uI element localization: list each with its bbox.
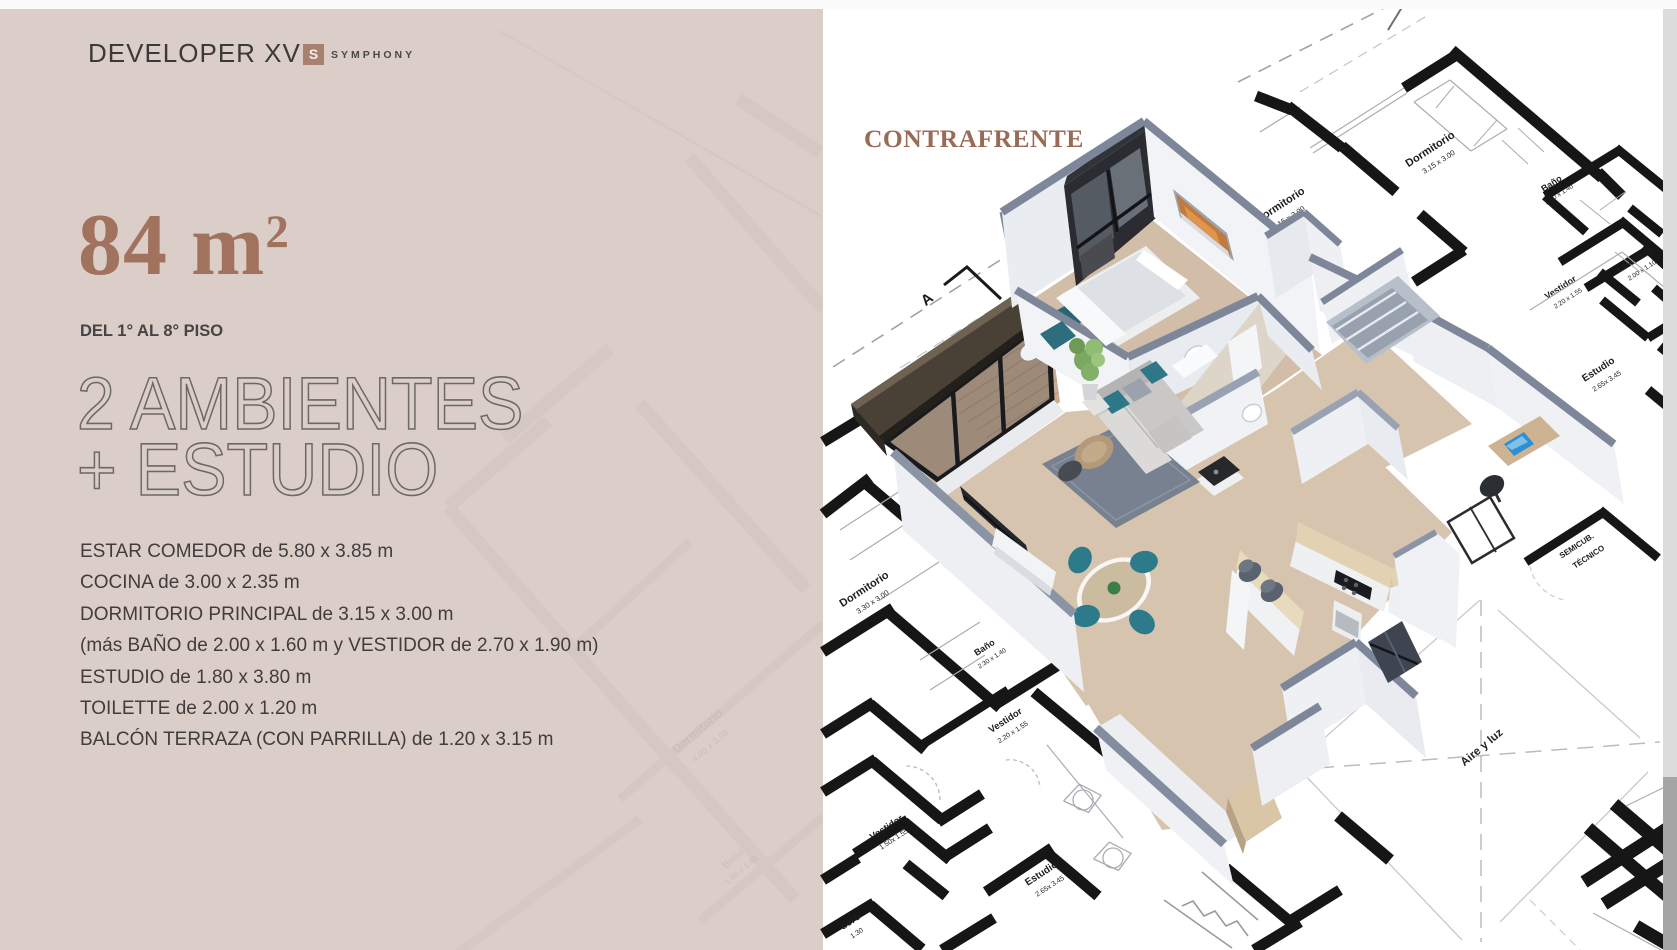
svg-text:CONTRAFRENTE: CONTRAFRENTE [864,124,1084,153]
